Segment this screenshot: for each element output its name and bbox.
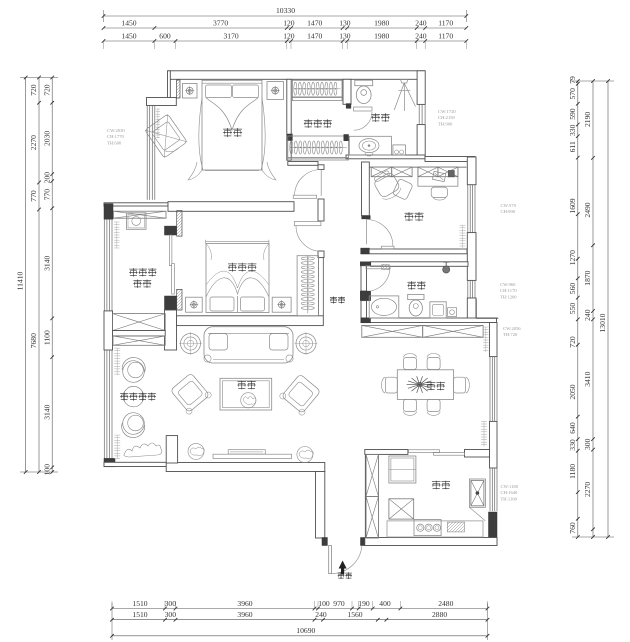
svg-text:720: 720 xyxy=(568,336,577,348)
svg-text:720: 720 xyxy=(29,84,38,96)
svg-text:720: 720 xyxy=(42,84,51,96)
svg-text:2270: 2270 xyxy=(29,135,38,150)
svg-text:2490: 2490 xyxy=(583,202,592,217)
svg-text:770: 770 xyxy=(29,190,38,202)
svg-text:10330: 10330 xyxy=(276,6,295,15)
svg-text:79: 79 xyxy=(568,76,577,84)
svg-text:400: 400 xyxy=(379,599,391,608)
svg-text:1510: 1510 xyxy=(132,610,147,619)
svg-text:611: 611 xyxy=(568,141,577,152)
svg-text:120: 120 xyxy=(283,31,295,40)
svg-text:TH:720: TH:720 xyxy=(503,332,518,337)
svg-text:CW:960: CW:960 xyxy=(500,282,516,287)
svg-text:13010: 13010 xyxy=(598,313,607,332)
svg-text:3410: 3410 xyxy=(583,371,592,386)
svg-text:CH:1770: CH:1770 xyxy=(107,134,125,139)
svg-text:1450: 1450 xyxy=(121,31,136,40)
svg-text:2190: 2190 xyxy=(583,112,592,127)
svg-text:1560: 1560 xyxy=(347,610,362,619)
svg-text:1180: 1180 xyxy=(568,464,577,479)
svg-text:550: 550 xyxy=(568,303,577,315)
svg-text:190: 190 xyxy=(358,599,370,608)
svg-text:CW:1720: CW:1720 xyxy=(438,109,456,114)
svg-text:300: 300 xyxy=(165,599,177,608)
svg-text:240: 240 xyxy=(415,31,427,40)
svg-text:1980: 1980 xyxy=(374,18,389,27)
svg-text:3140: 3140 xyxy=(42,256,51,271)
svg-text:200: 200 xyxy=(42,172,51,184)
svg-text:600: 600 xyxy=(159,31,171,40)
svg-text:640: 640 xyxy=(568,422,577,434)
svg-text:300: 300 xyxy=(583,438,592,450)
svg-text:760: 760 xyxy=(568,522,577,534)
svg-text:120: 120 xyxy=(283,18,295,27)
svg-text:CH:900: CH:900 xyxy=(501,209,516,214)
svg-text:300: 300 xyxy=(165,610,177,619)
svg-text:3170: 3170 xyxy=(224,31,239,40)
svg-text:970: 970 xyxy=(333,599,345,608)
svg-text:TH:1160: TH:1160 xyxy=(501,496,518,501)
svg-text:1980: 1980 xyxy=(374,31,389,40)
svg-text:1609: 1609 xyxy=(568,198,577,213)
svg-text:10690: 10690 xyxy=(296,626,315,635)
svg-text:2030: 2030 xyxy=(42,131,51,146)
svg-text:130: 130 xyxy=(339,31,351,40)
svg-text:590: 590 xyxy=(568,108,577,120)
svg-text:CW:1180: CW:1180 xyxy=(501,484,519,489)
svg-text:560: 560 xyxy=(568,283,577,295)
svg-text:2050: 2050 xyxy=(568,384,577,399)
svg-text:11410: 11410 xyxy=(16,271,25,290)
svg-text:240: 240 xyxy=(315,610,327,619)
svg-text:1100: 1100 xyxy=(42,330,51,345)
svg-text:3960: 3960 xyxy=(237,599,252,608)
svg-text:1450: 1450 xyxy=(121,18,136,27)
svg-text:3140: 3140 xyxy=(42,404,51,419)
svg-text:1470: 1470 xyxy=(307,31,322,40)
svg-text:240: 240 xyxy=(583,309,592,321)
svg-text:CW:570: CW:570 xyxy=(501,203,517,208)
svg-text:130: 130 xyxy=(339,18,351,27)
svg-text:CW:2030: CW:2030 xyxy=(107,128,125,133)
svg-text:3960: 3960 xyxy=(237,610,252,619)
svg-text:CW:2056: CW:2056 xyxy=(503,326,521,331)
svg-text:TH:1200: TH:1200 xyxy=(500,294,517,299)
svg-text:1470: 1470 xyxy=(307,18,322,27)
svg-text:2480: 2480 xyxy=(438,599,453,608)
svg-text:1270: 1270 xyxy=(568,250,577,265)
svg-text:100: 100 xyxy=(42,464,51,476)
svg-text:1870: 1870 xyxy=(583,270,592,285)
svg-text:570: 570 xyxy=(568,88,577,100)
svg-text:330: 330 xyxy=(568,439,577,451)
svg-text:TH:600: TH:600 xyxy=(107,140,122,145)
svg-text:100: 100 xyxy=(318,599,330,608)
svg-text:2880: 2880 xyxy=(432,610,447,619)
svg-text:CH:1170: CH:1170 xyxy=(500,288,517,293)
svg-text:2270: 2270 xyxy=(583,482,592,497)
svg-text:1510: 1510 xyxy=(132,599,147,608)
svg-text:TH:900: TH:900 xyxy=(438,121,453,126)
svg-text:330: 330 xyxy=(568,124,577,136)
svg-text:770: 770 xyxy=(42,189,51,201)
svg-text:CH:2150: CH:2150 xyxy=(438,115,456,120)
svg-text:1170: 1170 xyxy=(438,18,453,27)
svg-text:240: 240 xyxy=(415,18,427,27)
svg-text:1170: 1170 xyxy=(438,31,453,40)
svg-text:7680: 7680 xyxy=(29,333,38,348)
svg-text:3770: 3770 xyxy=(213,18,228,27)
svg-text:CH:1640: CH:1640 xyxy=(501,490,519,495)
